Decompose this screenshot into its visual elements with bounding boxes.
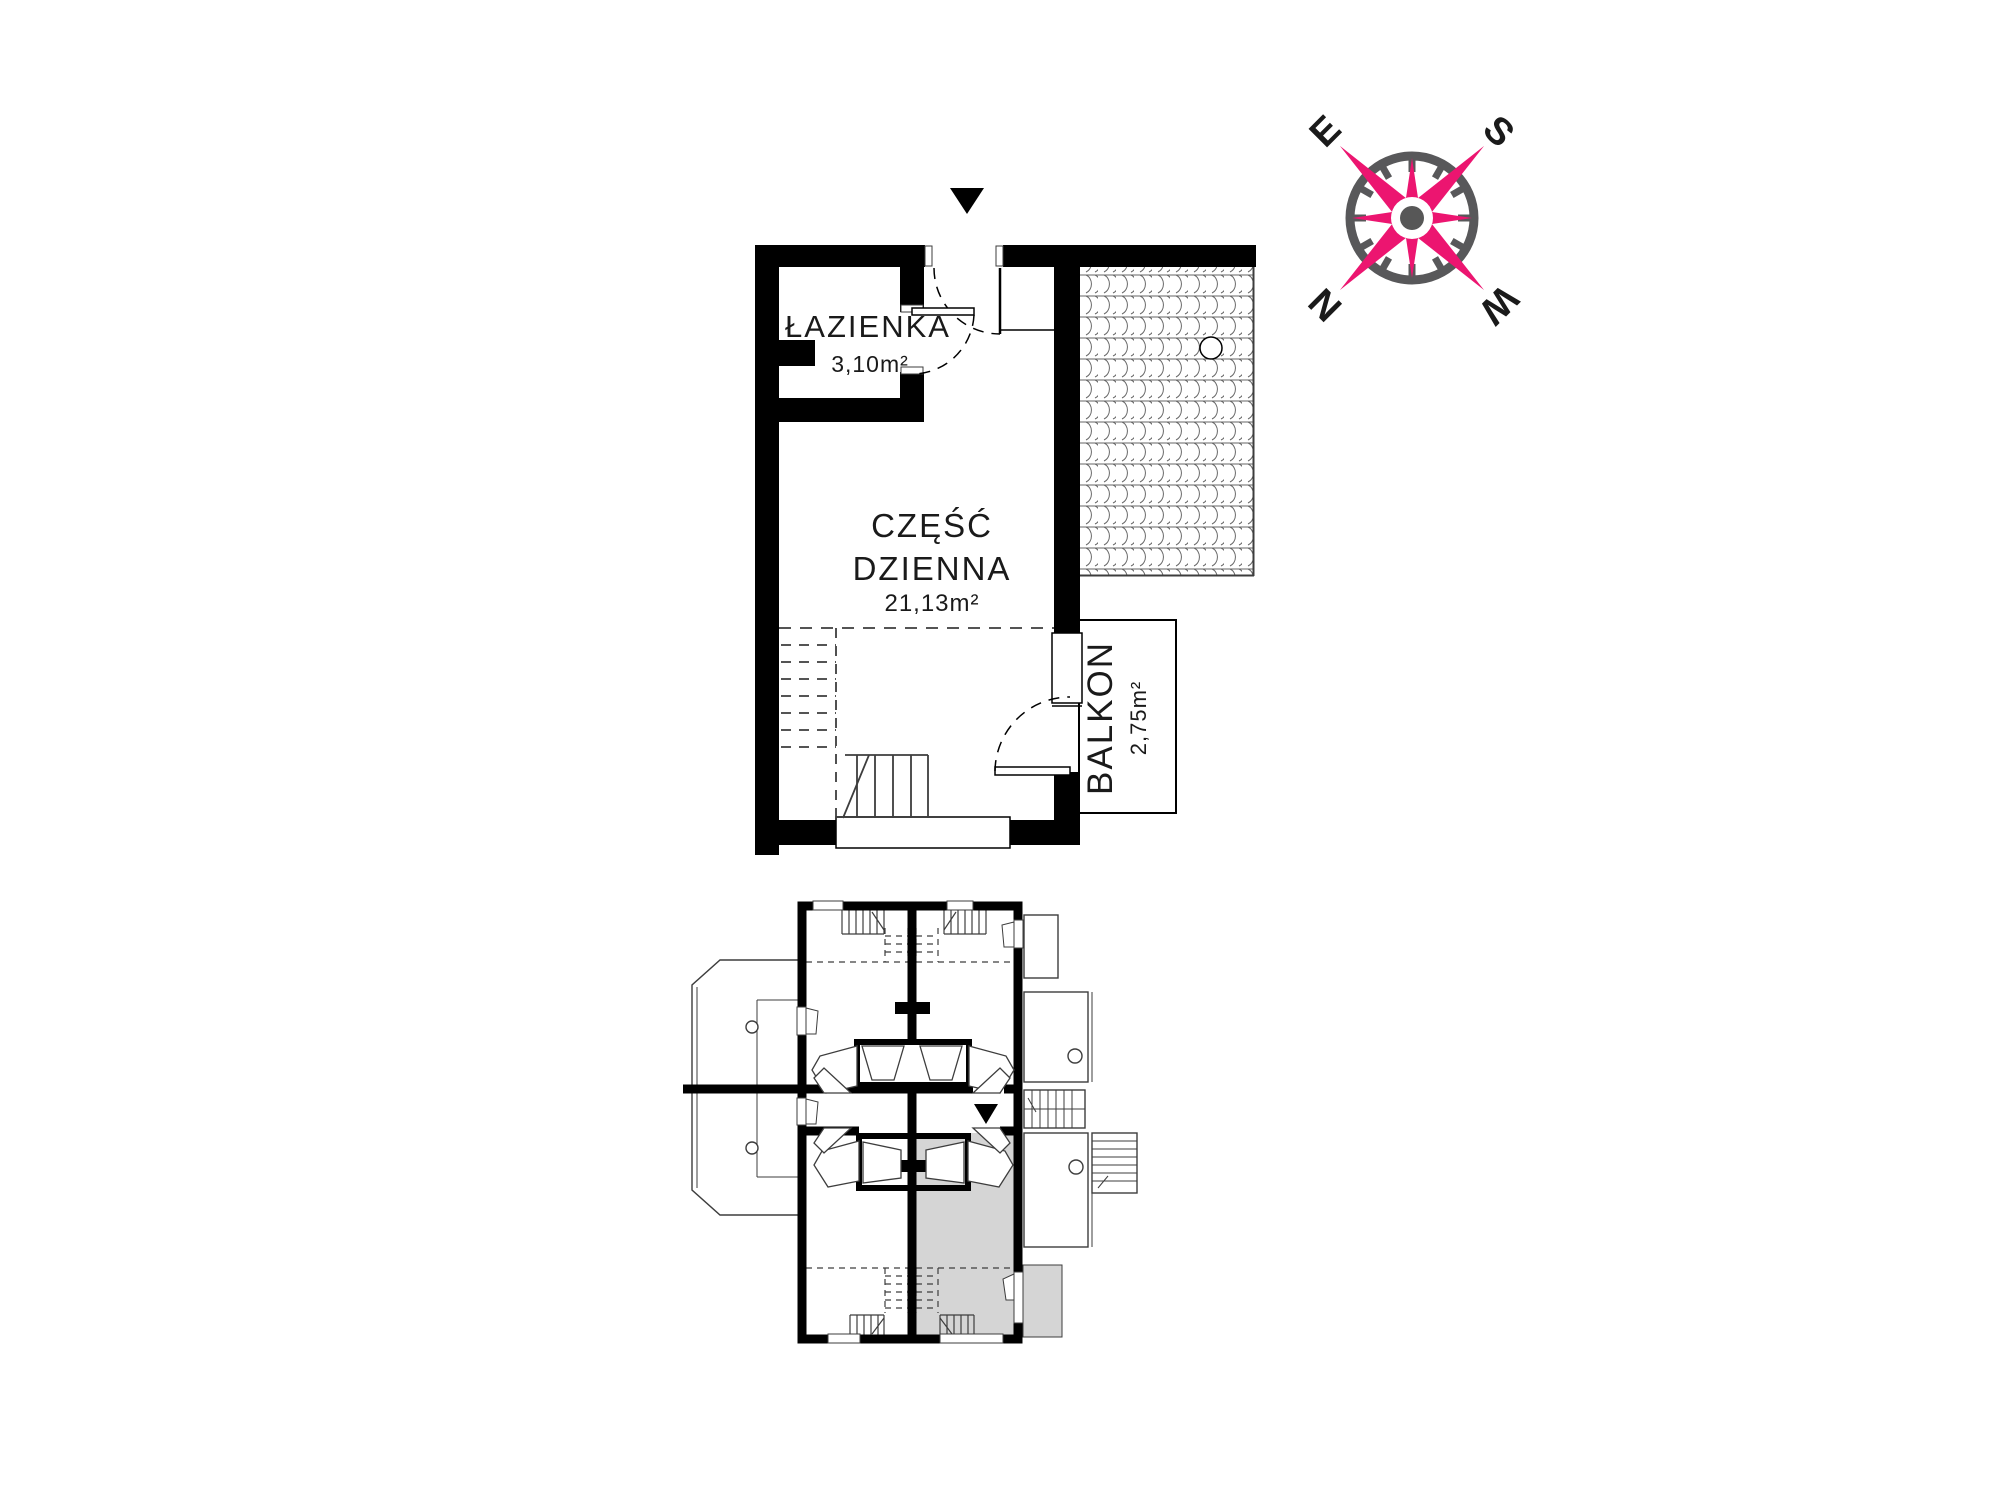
balcony-table-circle (1068, 1049, 1082, 1063)
overview-entrance-arrow-icon (974, 1104, 998, 1124)
external-stairs-horizontal (1024, 1090, 1085, 1128)
terrace-table-circle (746, 1142, 758, 1154)
living-label-line2: DZIENNA (853, 550, 1012, 587)
building-overview-plan (683, 901, 1137, 1343)
balcony-low-right (1024, 1133, 1088, 1247)
bathroom-area: 3,10m² (831, 351, 909, 377)
terrace-table-circle (746, 1021, 758, 1033)
balcony-area: 2,75m² (1126, 681, 1151, 755)
balcony-label: BALKON (1081, 641, 1120, 795)
external-stairs-vertical (1092, 1133, 1137, 1193)
floor-plan-canvas: ŁAZIENKA 3,10m² CZĘŚĆ DZIENNA 21,13m² BA… (0, 0, 2000, 1500)
balcony-door (995, 697, 1070, 775)
entry-door (934, 268, 1054, 334)
living-label-line1: CZĘŚĆ (871, 506, 993, 544)
living-area: 21,13m² (884, 590, 979, 617)
main-floor-plan: ŁAZIENKA 3,10m² CZĘŚĆ DZIENNA 21,13m² BA… (755, 188, 1256, 855)
compass-rose: N E S W (1210, 16, 1614, 420)
bathroom-label: ŁAZIENKA (785, 309, 951, 344)
bottom-window (836, 817, 1010, 848)
balcony-table-circle (1069, 1160, 1083, 1174)
entrance-arrow-icon (950, 188, 984, 214)
roof-vent-circle (1200, 337, 1222, 359)
balcony-mid-right (1024, 992, 1088, 1082)
right-side-structures (1024, 915, 1137, 1247)
balcony-window (1052, 633, 1082, 706)
highlighted-unit-balcony (1023, 1265, 1062, 1337)
balcony-top-right (1024, 915, 1058, 978)
stairs (779, 628, 1054, 818)
roof-hatch-area (1080, 267, 1254, 576)
